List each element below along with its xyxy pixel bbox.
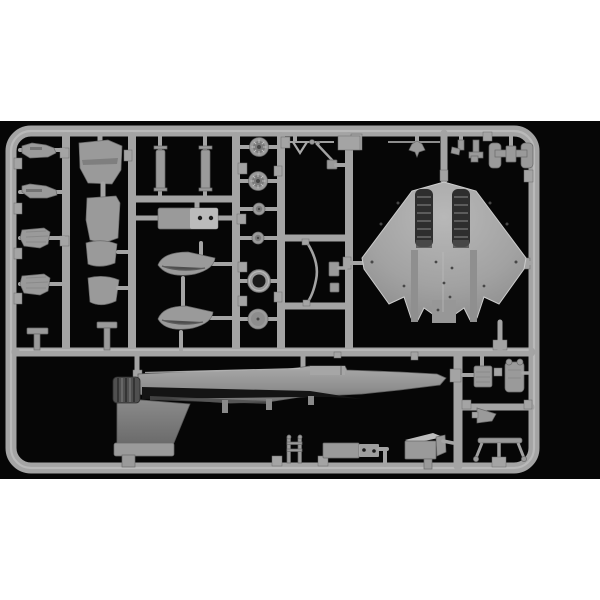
intake-channel-right xyxy=(452,189,470,247)
sprue-photo-canvas xyxy=(0,0,600,600)
letterbox-top xyxy=(0,0,600,121)
intake-ramp-panel-small xyxy=(86,196,120,243)
fin-gate-foot xyxy=(122,455,135,467)
underside-tab-3 xyxy=(308,396,314,405)
intake-lip-lower xyxy=(88,276,119,304)
underside-tab-1 xyxy=(222,400,228,413)
spine-block xyxy=(310,366,345,375)
letterbox-bottom xyxy=(0,479,600,600)
fin-base-plate xyxy=(114,443,174,456)
intake-lip-upper xyxy=(86,241,117,267)
engine-nozzle xyxy=(113,377,140,403)
underside-tab-2 xyxy=(266,399,272,410)
intake-channel-left xyxy=(415,189,433,247)
photo-of-model-kit-sprue xyxy=(0,0,600,600)
